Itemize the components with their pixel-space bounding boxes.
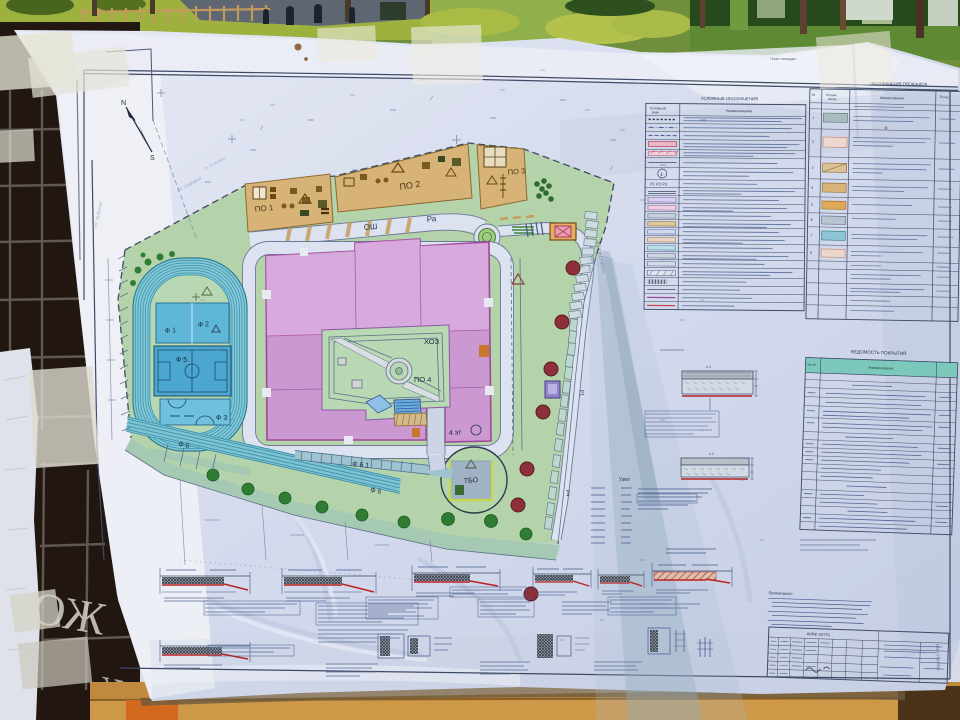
svg-text:Ф 2: Ф 2: [198, 321, 210, 329]
svg-text:обозн.: обозн.: [828, 97, 838, 101]
svg-text:Р1: Р1: [578, 390, 585, 397]
svg-text:Ф 5.: Ф 5.: [176, 357, 189, 364]
svg-text:к.2: к.2: [709, 451, 715, 456]
svg-text:ХОЗ: ХОЗ: [424, 337, 440, 346]
svg-text:5: 5: [811, 203, 813, 207]
svg-text:Р4: Р4: [564, 490, 570, 497]
svg-text:ООО ГРУППА: ООО ГРУППА: [935, 644, 941, 671]
svg-text:АКРФ-20-ПЗ: АКРФ-20-ПЗ: [807, 631, 831, 637]
svg-text:План посадки: План посадки: [770, 56, 796, 61]
svg-text:Ф 3: Ф 3: [216, 415, 227, 422]
svg-text:8: 8: [810, 251, 812, 255]
svg-text:4: 4: [811, 186, 813, 190]
svg-text:к.1: к.1: [706, 364, 712, 369]
svg-text:УСЛОВНЫЕ ОБОЗНАЧЕНИЯ: УСЛОВНЫЕ ОБОЗНАЧЕНИЯ: [701, 96, 758, 101]
svg-text:S: S: [150, 155, 155, 162]
svg-text:Наименование: Наименование: [726, 109, 752, 113]
svg-text:3: 3: [812, 166, 814, 170]
svg-text:6: 6: [811, 218, 813, 222]
svg-text:N: N: [121, 100, 126, 107]
svg-text:7: 7: [810, 234, 812, 238]
svg-text:знак: знак: [652, 110, 660, 114]
svg-text:1: 1: [812, 116, 814, 120]
svg-text:ПО 3: ПО 3: [507, 166, 525, 177]
svg-text:Площ.: Площ.: [940, 95, 950, 99]
svg-text:Ра: Ра: [426, 214, 437, 224]
svg-text:ОШ: ОШ: [363, 222, 377, 232]
svg-text:2: 2: [812, 140, 814, 144]
svg-text:Наименование: Наименование: [880, 96, 904, 100]
svg-text:ПО 4: ПО 4: [414, 375, 431, 384]
svg-text:ТБО: ТБО: [464, 477, 479, 485]
svg-text:Р1 Р2 Р3: Р1 Р2 Р3: [650, 181, 668, 186]
svg-text:4 эт: 4 эт: [449, 429, 463, 437]
svg-text:Узел: Узел: [619, 477, 630, 483]
svg-text:№ п/п: № п/п: [808, 363, 817, 367]
svg-text:Примечания:: Примечания:: [768, 590, 792, 596]
svg-text:Ф 1: Ф 1: [165, 327, 177, 335]
svg-text:1: 1: [660, 172, 663, 178]
